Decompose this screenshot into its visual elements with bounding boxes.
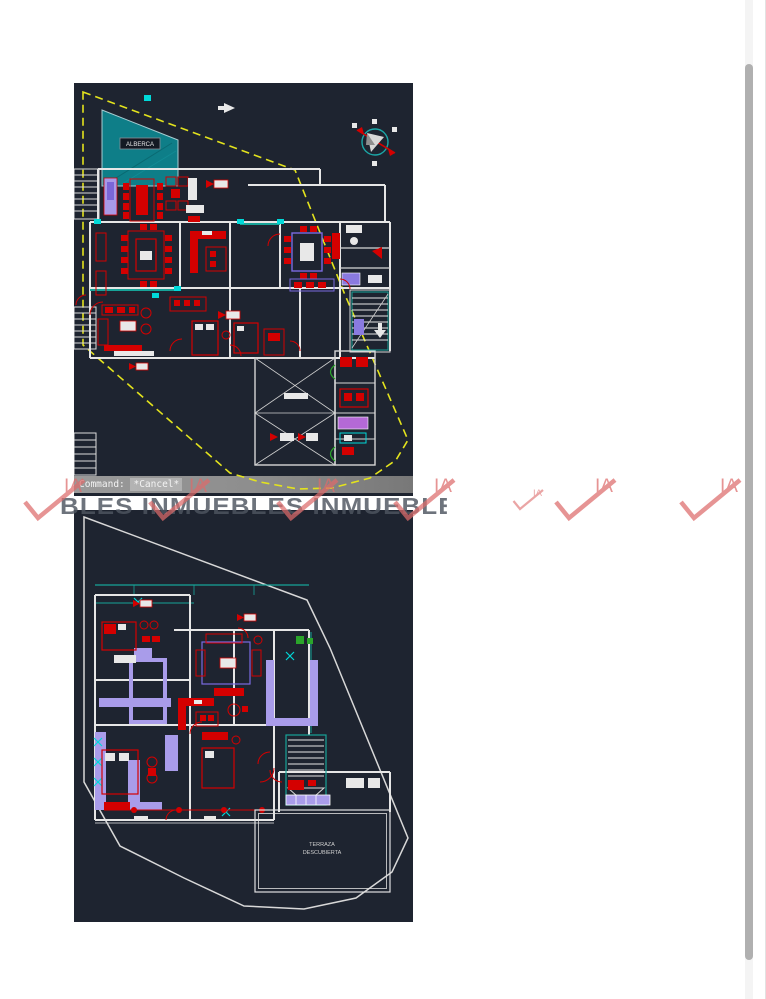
dining-room-furniture: [96, 224, 172, 295]
pool-alberca: ALBERCA: [102, 95, 178, 186]
pan-arrow-right-icon: [218, 103, 235, 113]
via-logo-text: IA: [533, 488, 543, 499]
north-arrow-icon: [352, 119, 397, 166]
cad-viewport-ground-floor: Command: *Cancel* ALBERCA: [74, 83, 413, 496]
via-watermark-logo: IA: [553, 476, 619, 522]
via-logo-text: IA: [64, 476, 82, 497]
living-room-furniture: [98, 297, 206, 351]
garage: [255, 358, 335, 465]
via-watermark-logo: IA: [275, 476, 341, 522]
closet-u-wall: [270, 660, 314, 722]
via-logo-text: IA: [317, 476, 335, 497]
breakfast-room-furniture: [284, 226, 340, 291]
upper-floor-plan-drawing: TERRAZA DESCUBIERTA: [74, 510, 413, 922]
terrace-label-line2: DESCUBIERTA: [303, 850, 342, 856]
via-watermark-logo: IA: [678, 476, 744, 522]
kitchen-furniture: [190, 231, 226, 273]
terrace-descubierta: TERRAZA DESCUBIERTA: [255, 810, 390, 892]
ground-floor-plan-drawing: ALBERCA: [74, 83, 413, 496]
pan-arrow-down-icon: [374, 323, 386, 338]
via-watermark-logo: IA: [512, 488, 545, 511]
scrollbar-track[interactable]: [745, 0, 753, 999]
terrace-label-line1: TERRAZA: [309, 842, 335, 848]
via-logo-text: IA: [434, 476, 452, 497]
stairs: [350, 290, 390, 352]
family-room-furniture: [196, 614, 262, 696]
exterior-stairs: [74, 169, 99, 475]
deck-lines: [90, 224, 280, 290]
via-logo-text: IA: [720, 476, 738, 497]
wall-opening: [134, 816, 148, 821]
wall-opening: [204, 816, 216, 821]
scrollbar-thumb[interactable]: [745, 64, 753, 960]
via-watermark-logo: IA: [22, 476, 88, 522]
via-watermark-logo: IA: [147, 476, 213, 522]
watermark-text-row: BLES INMUEBLES INMUEBLES IN: [60, 494, 447, 520]
laundry-room-furniture: [286, 778, 380, 805]
document-page: Command: *Cancel* ALBERCA: [0, 0, 766, 999]
pool-label: ALBERCA: [126, 142, 154, 148]
closet-walls: [95, 648, 178, 810]
via-logo-text: IA: [595, 476, 613, 497]
via-logo-text: IA: [189, 476, 207, 497]
cad-viewport-upper-floor: TERRAZA DESCUBIERTA: [74, 510, 413, 922]
via-watermark-logo: IA: [392, 476, 458, 522]
utility-rooms: [331, 351, 376, 465]
bathrooms: [340, 225, 390, 285]
